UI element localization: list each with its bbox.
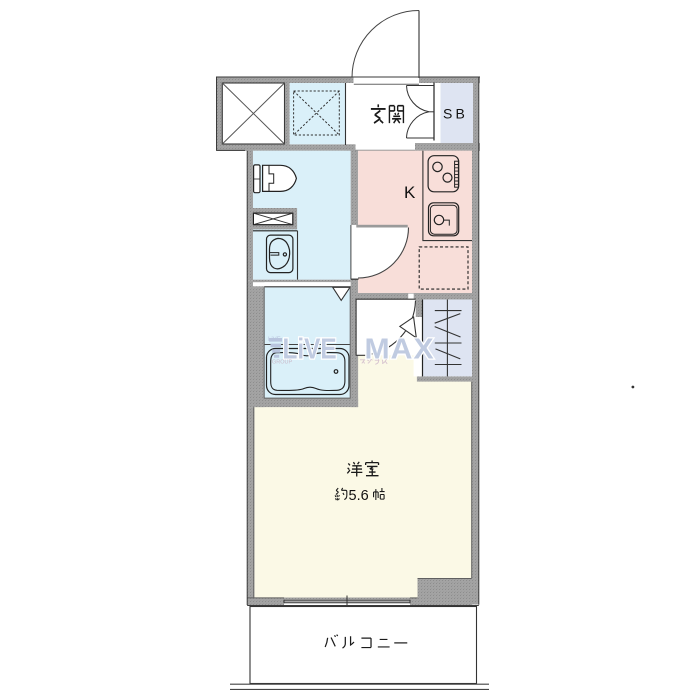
svg-text:GROUP: GROUP xyxy=(272,360,293,366)
svg-text:5.6: 5.6 xyxy=(349,488,369,504)
svg-text:LiVE: LiVE xyxy=(268,337,281,343)
svg-text:K: K xyxy=(404,183,416,202)
svg-text:SB: SB xyxy=(443,106,468,122)
